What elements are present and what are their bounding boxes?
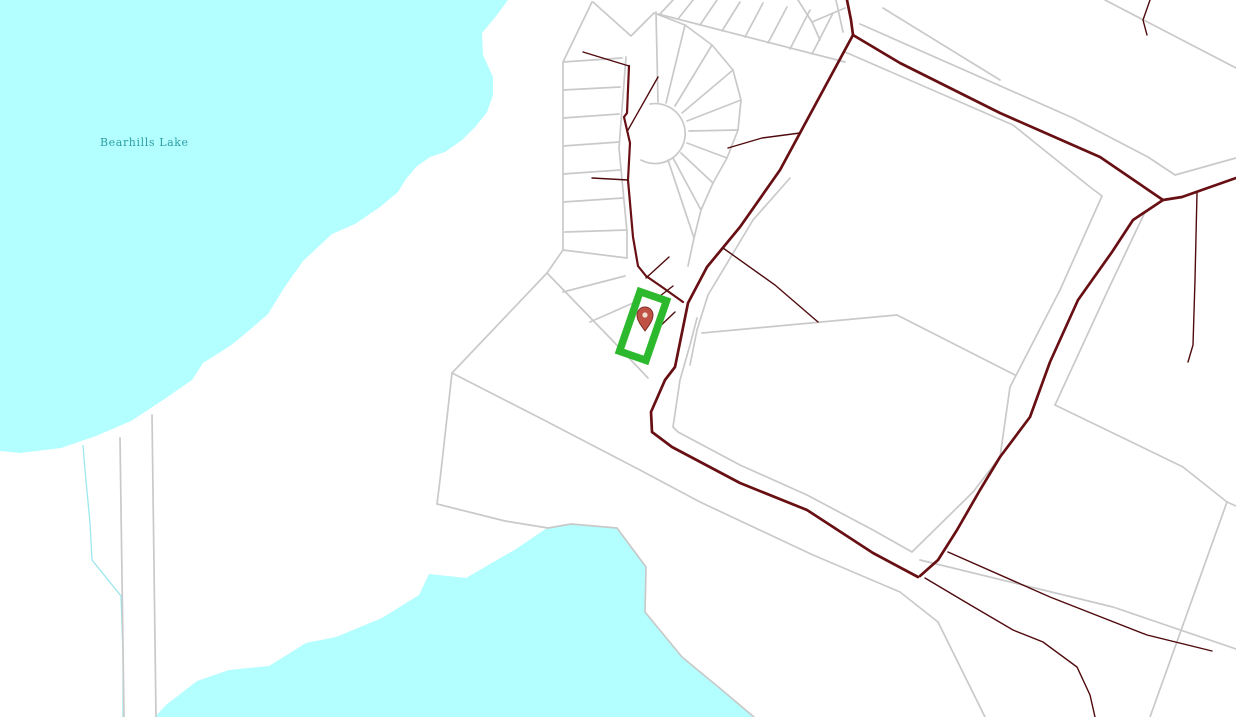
road-diagonal-northeast [853, 35, 1163, 200]
location-pin-icon[interactable] [637, 307, 653, 331]
road-north-stub [847, 0, 853, 35]
road-east-branch [1163, 178, 1236, 200]
road-layer [583, 0, 1236, 717]
map-graphics [0, 0, 1236, 717]
lake-name-label: Bearhills Lake [100, 136, 189, 149]
lake-bearhills [0, 0, 508, 453]
lake-bottom [155, 524, 754, 717]
road-subdivision [624, 66, 683, 302]
stream-line [83, 445, 123, 717]
road-descending-east [920, 200, 1163, 576]
map-canvas[interactable]: Bearhills Lake [0, 0, 1236, 717]
road-main-central [651, 35, 918, 577]
